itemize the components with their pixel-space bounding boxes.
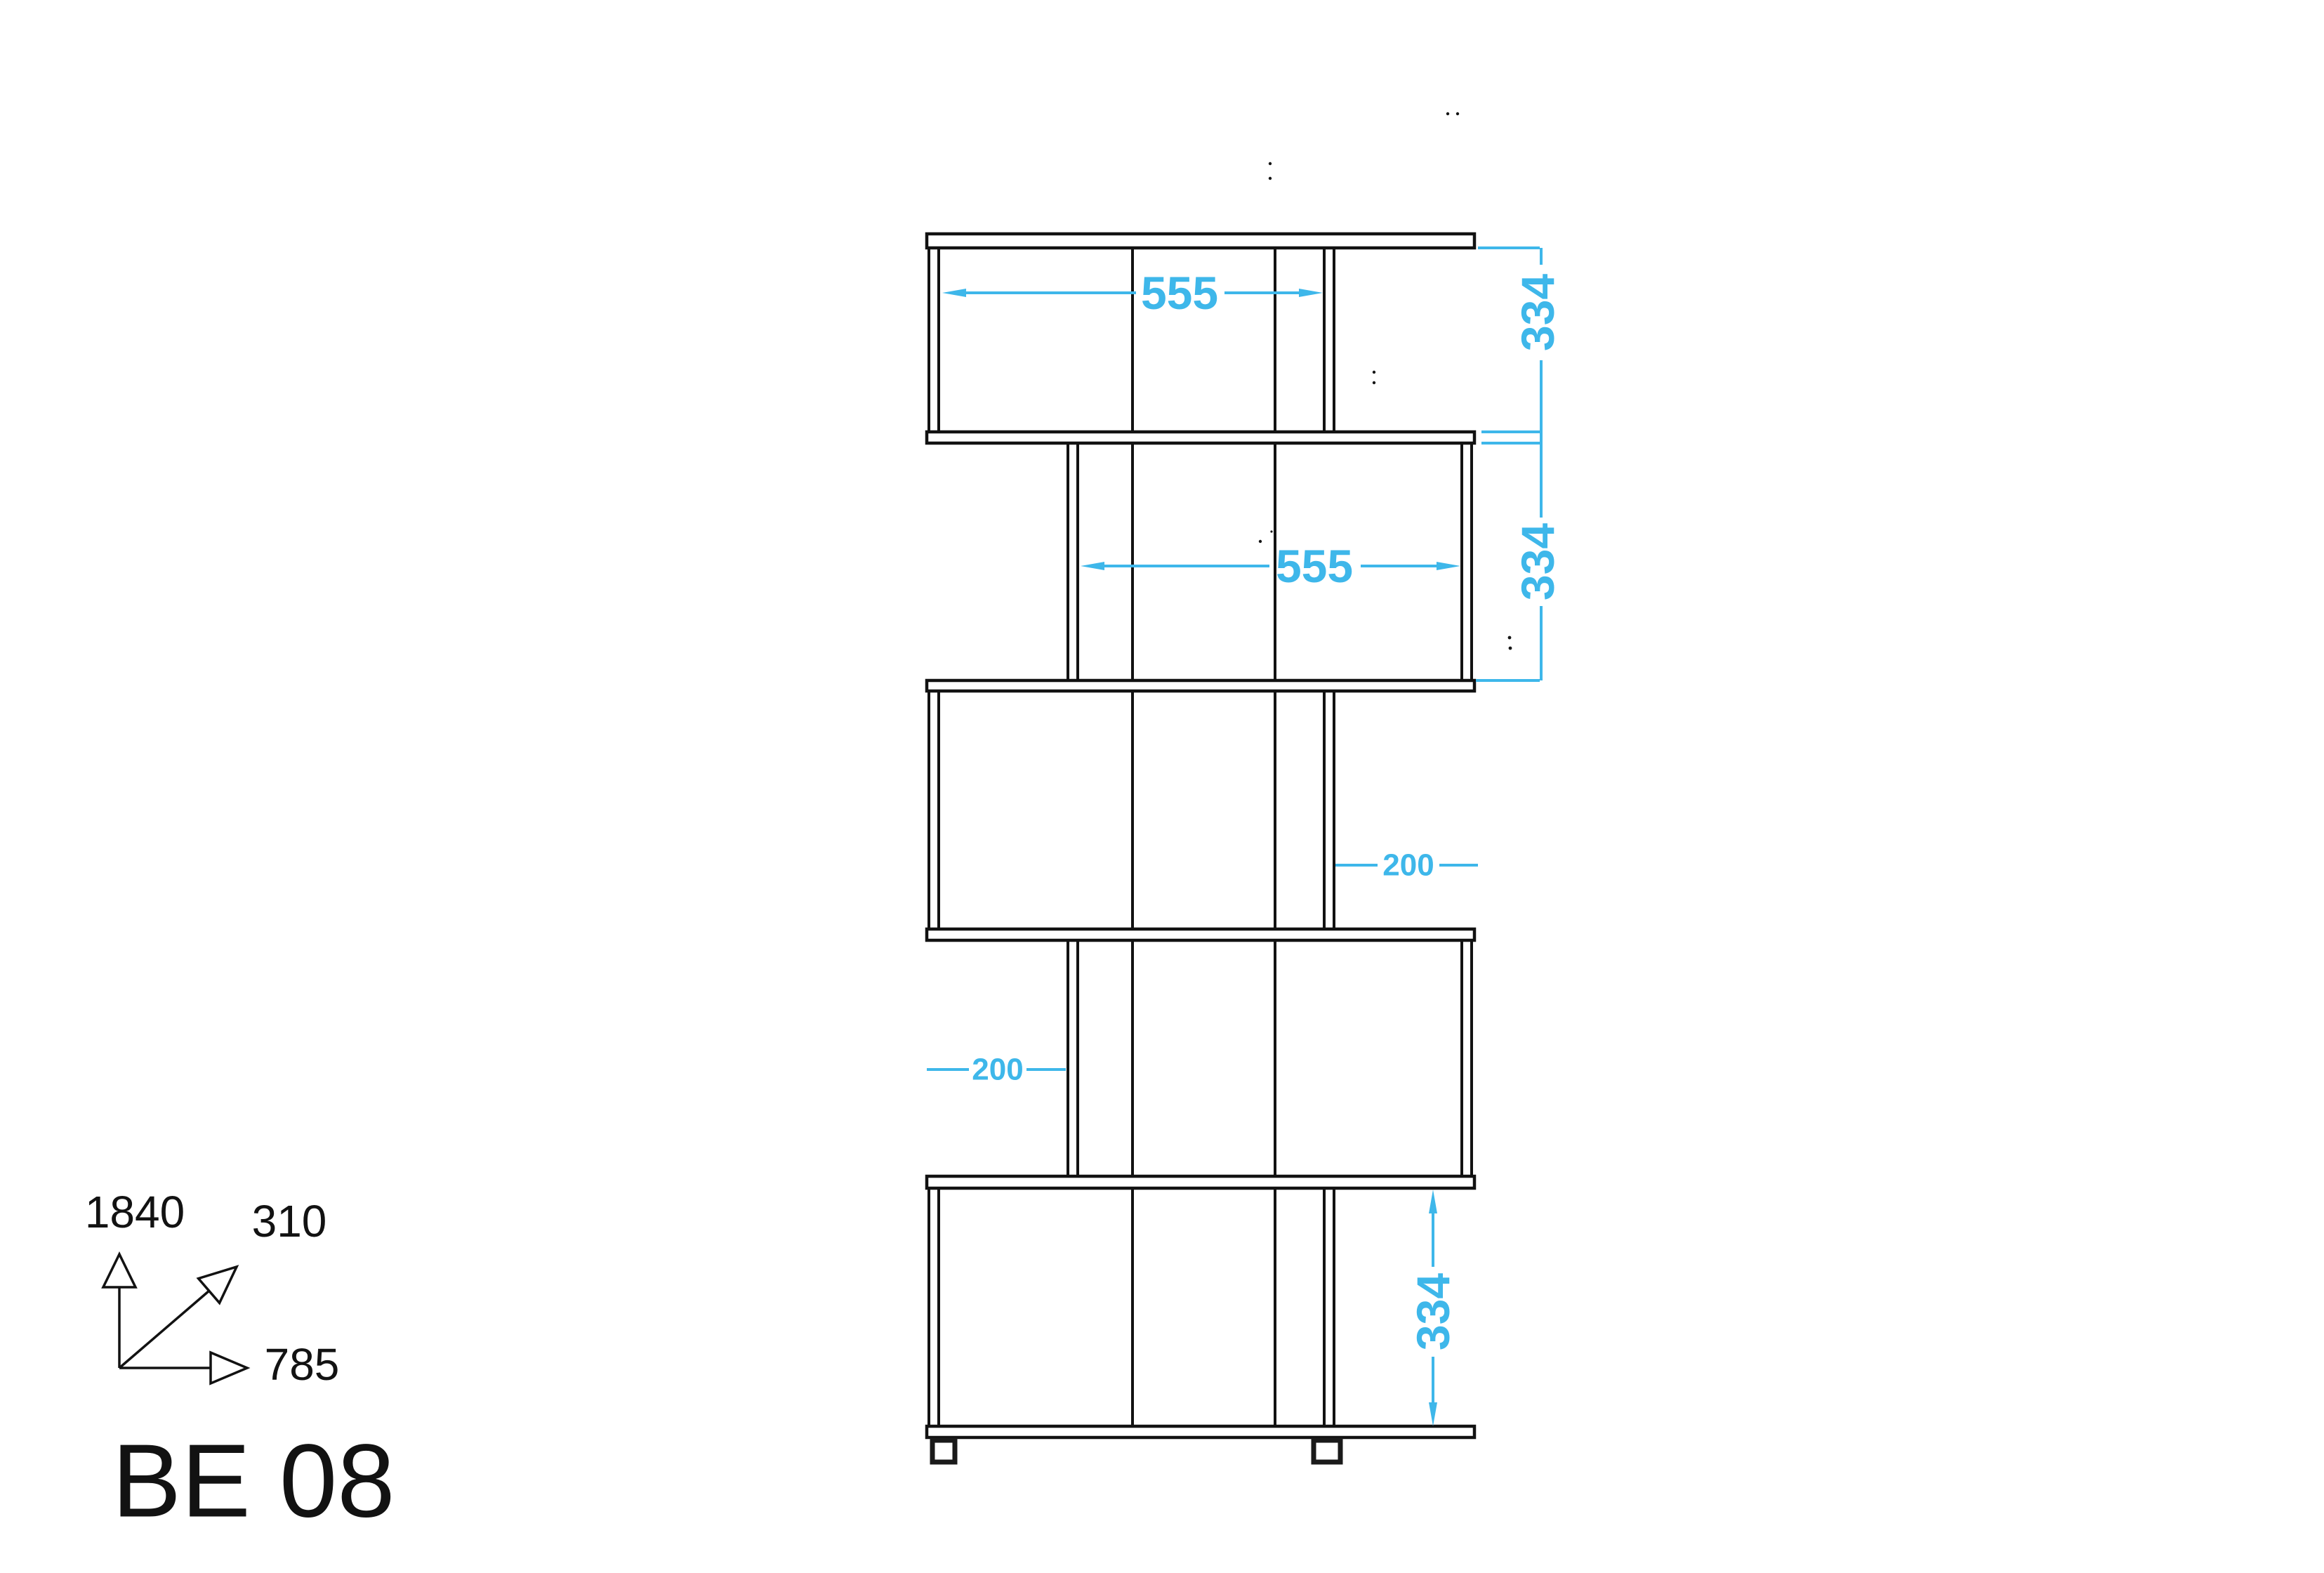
shelf-board-bottom <box>927 1426 1474 1437</box>
axis-diagonal-arrow-icon <box>199 1267 237 1303</box>
shelf-board-2 <box>927 432 1474 443</box>
row1-panels <box>929 248 1334 432</box>
axis-depth-line <box>119 1291 209 1368</box>
dim-label-row2-width: 555 <box>1276 540 1353 592</box>
shelf-board-5 <box>927 1176 1474 1188</box>
row4-panels <box>1068 940 1472 1176</box>
arrow-up-icon <box>1429 1190 1437 1213</box>
arrow-left-icon <box>942 289 966 297</box>
arrow-right-icon <box>1437 562 1460 570</box>
arrow-down-icon <box>1429 1402 1437 1426</box>
row5-panels <box>929 1188 1334 1426</box>
dim-width-row2: 555 <box>1081 540 1460 592</box>
arrow-left-icon <box>1081 562 1104 570</box>
shelf-boards <box>927 234 1474 1437</box>
axis-width-label: 785 <box>265 1339 340 1390</box>
foot-left <box>932 1440 955 1462</box>
dim-label-row1-height: 334 <box>1512 274 1564 351</box>
speck-dot <box>1446 112 1449 115</box>
axis-depth-label: 310 <box>252 1196 327 1246</box>
speck-dot <box>1270 530 1272 532</box>
blueprint-page: 555 555 334 <box>0 0 2324 1573</box>
furniture-drawing-be08: 555 555 334 <box>0 0 2324 1573</box>
dim-label-bottom-height: 334 <box>1407 1273 1459 1350</box>
row2-panels <box>1068 443 1472 680</box>
dim-label-offset-left: 200 <box>972 1053 1023 1087</box>
shelf-board-top <box>927 234 1474 248</box>
speck-dot <box>1269 162 1272 165</box>
speck-dot <box>1259 540 1262 543</box>
dim-label-row2-height: 334 <box>1512 523 1564 600</box>
speck-dot <box>1373 371 1375 374</box>
speck-dot <box>1508 636 1512 640</box>
axis-right-arrow-icon <box>211 1352 247 1383</box>
speck-dot <box>1456 112 1459 115</box>
dim-label-offset-right: 200 <box>1382 848 1434 883</box>
dim-offset-left: 200 <box>927 1053 1066 1087</box>
dim-height-bottom: 334 <box>1407 1190 1459 1426</box>
feet <box>932 1440 1340 1462</box>
shelf-board-4 <box>927 929 1474 940</box>
shelf-board-3 <box>927 680 1474 691</box>
dim-height-row2: 334 <box>1476 443 1564 680</box>
dimensions: 555 555 334 <box>927 248 1564 1426</box>
axis-up-arrow-icon <box>103 1254 136 1287</box>
row3-panels <box>929 691 1334 929</box>
axis-triad: 1840 310 785 <box>85 1187 340 1390</box>
dim-height-row1: 334 <box>1478 248 1564 443</box>
foot-right <box>1314 1440 1340 1462</box>
speck-dot <box>1373 381 1375 384</box>
arrow-right-icon <box>1299 289 1323 297</box>
speck-dot <box>1269 177 1272 180</box>
speck-dot <box>1509 647 1512 650</box>
dim-label-row1-width: 555 <box>1141 267 1218 319</box>
dim-offset-right: 200 <box>1335 848 1478 883</box>
axis-height-label: 1840 <box>85 1187 185 1237</box>
model-code-label: BE 08 <box>112 1423 395 1539</box>
